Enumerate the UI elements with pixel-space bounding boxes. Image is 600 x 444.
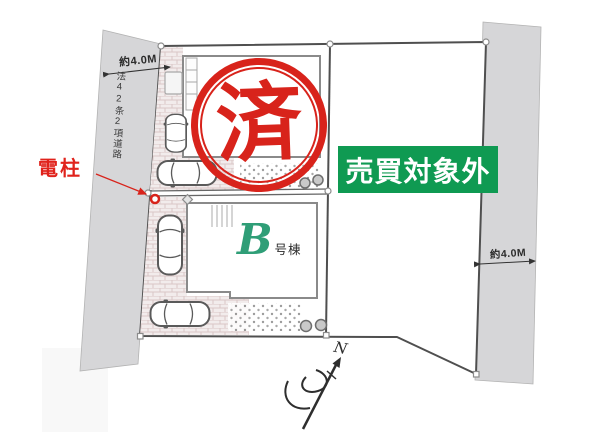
plot-b-gravel-area <box>228 303 302 331</box>
car-plot-a-vertical <box>164 114 189 152</box>
utility-pole-label: 電柱 <box>38 152 82 181</box>
car-plot-b-horizontal <box>151 300 210 329</box>
building-b-label: B 号棟 <box>237 219 302 261</box>
building-b-letter: B <box>237 219 273 261</box>
site-plan-canvas: 約4.0M 法42条2項道路 電柱 済 売買対象外 B 号棟 約4.0M N <box>0 0 600 444</box>
car-plot-b-vertical <box>156 216 185 275</box>
not-for-sale-banner: 売買対象外 <box>338 146 498 193</box>
building-b-suffix: 号棟 <box>275 239 302 258</box>
north-arrow-icon <box>285 357 341 429</box>
utility-pole-icon <box>151 195 159 203</box>
